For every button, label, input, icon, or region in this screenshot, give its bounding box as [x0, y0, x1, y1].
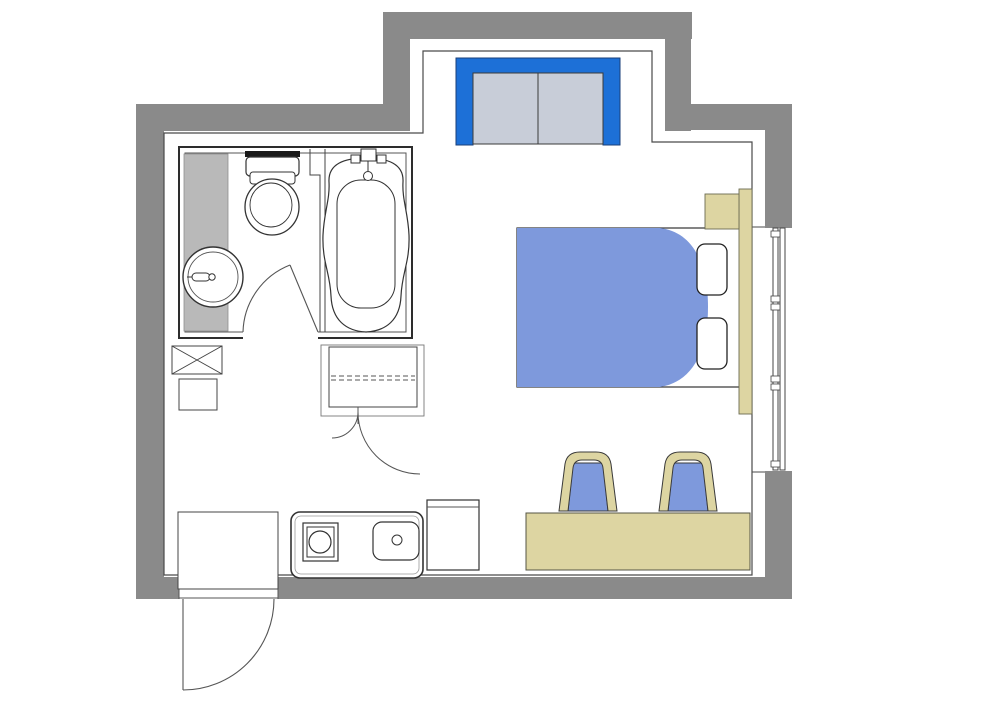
basin-faucet	[192, 273, 210, 281]
wall-alcove-top	[383, 12, 692, 39]
bathtub-outer	[323, 158, 409, 332]
closet-panel-right	[538, 73, 603, 144]
window-lock	[771, 376, 780, 382]
window-lock	[771, 461, 780, 467]
toilet-shelf	[245, 151, 300, 157]
storage-box	[179, 379, 217, 410]
wall-left	[136, 104, 164, 599]
window-sash-inner	[780, 228, 785, 470]
wardrobe-body	[329, 347, 417, 407]
closet-sliding-panels	[473, 73, 603, 144]
window-lock	[771, 304, 780, 310]
tub-handle-left	[351, 155, 360, 163]
pillow-right	[697, 318, 727, 369]
side-cabinet	[427, 500, 479, 570]
window-lock	[771, 296, 780, 302]
toilet	[245, 157, 299, 235]
entry-mat	[178, 512, 278, 589]
wall-top-left	[136, 104, 410, 131]
desk	[526, 513, 750, 570]
floor-plan	[0, 0, 1000, 707]
tub-handle-right	[377, 155, 386, 163]
headboard	[739, 189, 752, 414]
chair-seat	[568, 463, 608, 511]
wall-bottom-left	[136, 577, 179, 599]
chair-seat	[668, 463, 708, 511]
bed-blanket	[517, 228, 708, 387]
nightstand	[705, 194, 739, 229]
tub-spout-body	[361, 149, 376, 161]
window-lock	[771, 384, 780, 390]
duct-shaft	[172, 346, 222, 374]
basin-faucet-knob	[209, 274, 215, 280]
washbasin	[183, 247, 243, 307]
closet-panel-left	[473, 73, 538, 144]
window-lock	[771, 231, 780, 237]
wall-right-upper	[765, 104, 792, 228]
pillow-left	[697, 244, 727, 295]
floor-plan-canvas	[0, 0, 1000, 707]
window-sash-outer	[773, 228, 778, 470]
sliding-window	[771, 228, 785, 470]
wall-bottom	[278, 577, 792, 599]
bathtub	[323, 149, 409, 332]
tub-spout	[364, 172, 373, 181]
